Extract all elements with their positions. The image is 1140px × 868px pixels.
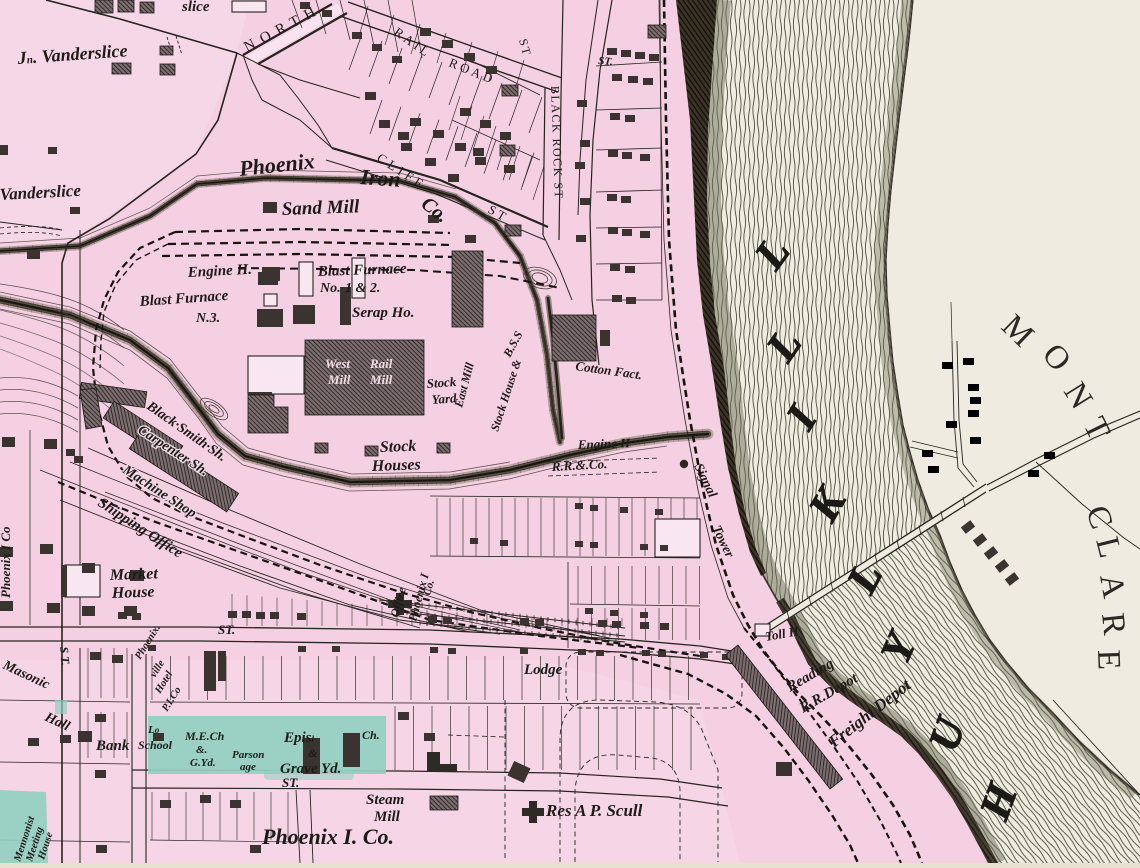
svg-text:R.R.&.Co.: R.R.&.Co. (550, 456, 607, 474)
svg-text:ST.: ST. (598, 55, 614, 68)
svg-text:ST.: ST. (282, 775, 299, 790)
svg-text:R: R (1094, 611, 1132, 637)
svg-text:Phoenix I Co: Phoenix I Co (0, 526, 13, 598)
svg-text:M.E.Ch: M.E.Ch (184, 729, 225, 743)
svg-text:School: School (138, 738, 173, 752)
svg-text:&: & (308, 746, 318, 760)
svg-text:Mill: Mill (369, 372, 393, 387)
svg-text:1 & 2.: 1 & 2. (345, 281, 380, 296)
svg-text:E: E (1090, 649, 1127, 670)
svg-text:Stock: Stock (426, 374, 457, 391)
svg-text:West: West (325, 356, 350, 371)
svg-text:Stock: Stock (380, 438, 417, 456)
svg-text:Rail: Rail (369, 356, 393, 371)
svg-text:Iron: Iron (359, 164, 402, 192)
svg-text:Grave Yd.: Grave Yd. (280, 761, 341, 777)
svg-text:ST.: ST. (218, 622, 235, 637)
svg-text:Lo: Lo (147, 724, 160, 736)
svg-text:Lodge: Lodge (523, 662, 563, 678)
svg-text:Serap Ho.: Serap Ho. (352, 305, 415, 321)
svg-text:Res A P. Scull: Res A P. Scull (545, 801, 643, 820)
svg-text:S T.: S T. (57, 646, 73, 666)
svg-text:slice: slice (181, 0, 210, 15)
svg-text:Ch.: Ch. (362, 728, 380, 742)
svg-text:N.3.: N.3. (195, 311, 220, 326)
svg-text:Mill: Mill (373, 809, 401, 825)
svg-text:Phoenix I. Co.: Phoenix I. Co. (261, 824, 394, 849)
svg-text:Parson: Parson (232, 749, 264, 761)
svg-text:House: House (111, 584, 155, 603)
svg-text:Engine H.: Engine H. (186, 262, 252, 281)
svg-text:Market: Market (109, 565, 159, 584)
svg-text:Engine H: Engine H (577, 435, 632, 452)
svg-text:Blast Furnace: Blast Furnace (317, 261, 408, 280)
svg-text:Episl: Episl (283, 730, 315, 746)
svg-text:&.: &. (196, 744, 207, 756)
svg-text:Houses: Houses (371, 456, 421, 475)
svg-text:Steam: Steam (366, 792, 404, 808)
svg-text:age: age (240, 761, 256, 773)
svg-text:No.: No. (319, 281, 341, 296)
svg-text:G.Yd.: G.Yd. (190, 757, 216, 769)
svg-text:Mill: Mill (327, 372, 351, 387)
svg-text:Bank: Bank (95, 738, 130, 754)
svg-text:Sand Mill: Sand Mill (281, 196, 360, 220)
